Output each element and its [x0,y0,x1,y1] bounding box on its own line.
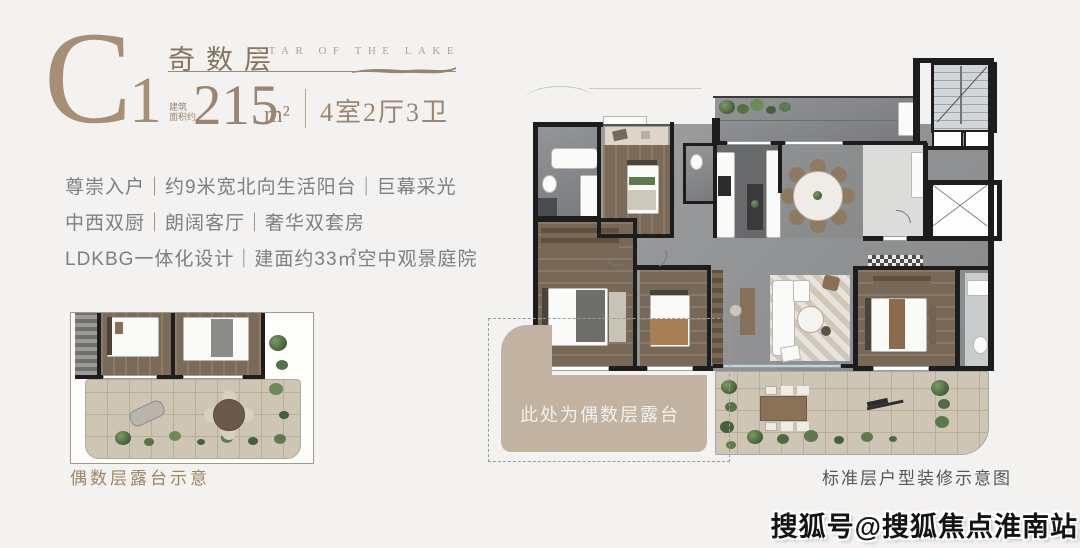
wall [913,58,920,145]
bed-blanket [211,319,233,357]
area-unit: m² [264,103,290,127]
plant [813,191,822,200]
terrace [85,379,301,459]
bed-pillow [115,322,123,334]
toilet [542,175,557,193]
feature-list: 尊崇入户｜约9米宽北向生活阳台｜巨幕采光 中西双厨｜朗阔客厅｜奢华双套房 LDK… [65,170,478,278]
bathroom-vanity [967,280,990,296]
area-prefix-line2: 面积约 [169,112,196,122]
wall [533,218,633,222]
side-table [821,326,831,336]
wall [712,118,720,143]
feature-line: LDKBG一体化设计｜建面约33㎡空中观景庭院 [65,242,478,278]
plant [115,431,131,445]
coffee-table [797,306,824,333]
plant [931,380,949,396]
room-config: 4室2厅3卫 [320,92,449,129]
inset-caption: 偶数层露台示意 [70,464,210,489]
desk-items [641,131,650,139]
feature-line: 尊崇入户｜约9米宽北向生活阳台｜巨幕采光 [65,170,478,206]
watermark: 搜狐号@搜狐焦点淮南站 [771,505,1078,544]
even-floor-terrace-area [501,325,552,452]
context-line [525,86,595,113]
toilet [973,336,988,354]
main-floorplan: 此处为偶数层露台 [485,58,1022,470]
outdoor-dining-table [760,396,807,421]
plan-caption: 标准层户型装修示意图 [822,464,1012,489]
unit-digit: 1 [129,68,162,134]
terrace-note: 此处为偶数层露台 [515,401,685,427]
outdoor-chair [765,422,777,431]
wall [853,266,858,371]
balcony-parapet [713,96,917,98]
unit-letter: C [44,12,132,144]
wall [670,122,674,238]
area-room-divider [305,89,306,128]
wall [533,122,603,127]
wardrobe [75,313,97,375]
wall [923,143,928,238]
wall [778,143,782,193]
wall [603,124,670,126]
project-name-en: STAR OF THE LAKE [256,45,460,57]
poster: C 1 奇数层 STAR OF THE LAKE 建筑 面积约 215 m² 4… [0,0,1080,548]
desk-chair [729,304,742,317]
window [727,141,771,145]
bed-runner [889,299,905,349]
plant [751,200,759,208]
area-prefix-line1: 建筑 [169,102,196,112]
desk [740,288,755,335]
balcony-seam [715,120,917,121]
bed-headboard [107,317,112,355]
wall [928,146,993,150]
inset-floorplan [70,312,314,464]
wall [633,265,711,270]
wall [955,270,960,371]
wardrobe [873,273,931,286]
outdoor-chair [765,386,777,395]
sliding-glass-door [723,364,841,368]
plant [747,430,763,444]
shower [537,198,557,218]
wall [988,58,994,371]
wall [913,58,993,63]
wall [261,313,265,379]
sofa-chaise [793,280,810,302]
plant [269,335,287,351]
outdoor-table [213,399,245,431]
wave-decoration [350,62,458,78]
bathtub [551,148,598,169]
bed-throw [629,177,655,185]
area-prefix: 建筑 面积约 [169,102,196,122]
toilet [690,154,703,170]
plant [719,100,735,114]
wall [853,266,993,270]
stove [718,176,731,196]
bed-blanket [628,190,656,210]
wall [713,143,717,238]
window [785,141,843,145]
context-line [589,88,701,89]
bench [929,306,936,344]
window [883,236,907,241]
feature-line: 中西双厨｜朗阔客厅｜奢华双套房 [65,206,478,242]
bathroom-vanity [580,175,598,217]
